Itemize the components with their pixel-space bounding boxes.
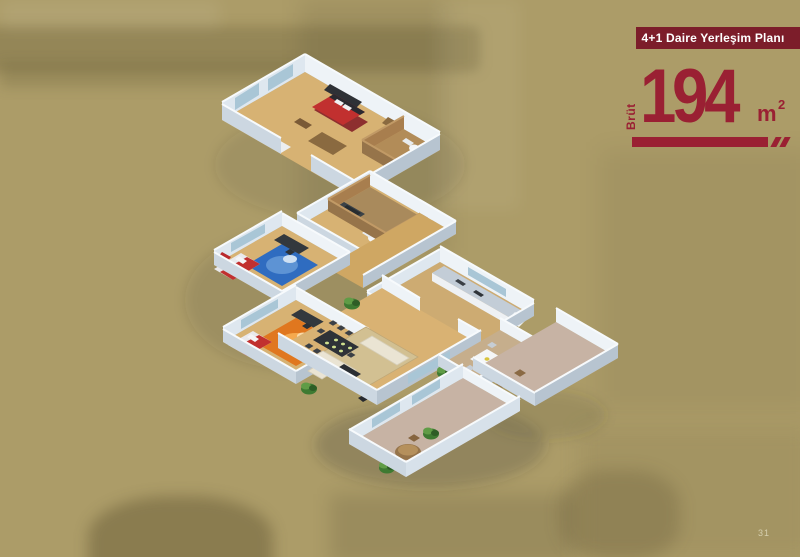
background-texture [600, 150, 800, 410]
background-texture [0, 0, 220, 30]
slash-marks-icon [779, 137, 790, 147]
area-unit: m [757, 101, 777, 127]
background-texture [560, 470, 680, 557]
background-texture [435, 0, 520, 210]
brochure-page: 4+1 Daire Yerleşim Planı Brüt 194 m 2 31 [0, 0, 800, 557]
area-unit-exponent: 2 [778, 97, 785, 112]
background-texture [88, 496, 273, 557]
area-prefix-label: Brüt [624, 82, 640, 130]
area-value: 194 [640, 59, 736, 135]
background-texture [330, 494, 575, 557]
plan-title-banner: 4+1 Daire Yerleşim Planı [636, 27, 800, 49]
background-texture [0, 62, 310, 88]
accent-rule [632, 137, 768, 147]
background-texture [300, 0, 450, 255]
background-texture [0, 26, 480, 72]
page-number: 31 [758, 528, 770, 538]
